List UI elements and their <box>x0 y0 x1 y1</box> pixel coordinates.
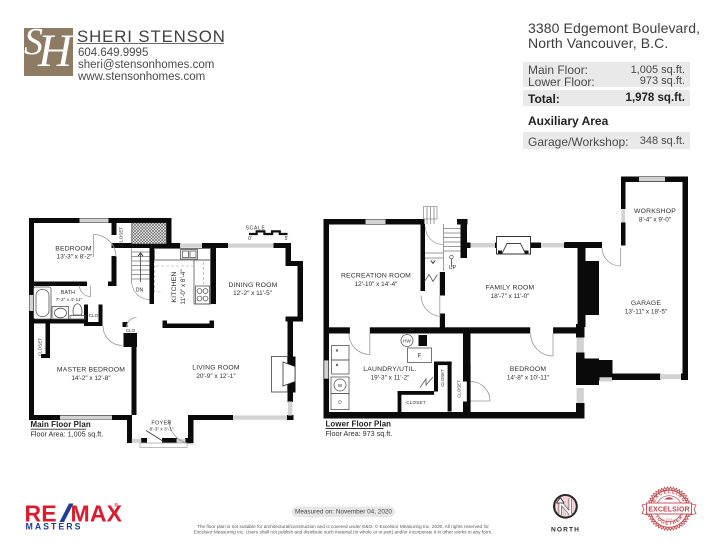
svg-text:— 2016 —: — 2016 — <box>662 517 676 521</box>
svg-text:BATH: BATH <box>61 290 75 296</box>
svg-text:W: W <box>338 383 343 389</box>
svg-text:FAMILY ROOM: FAMILY ROOM <box>486 285 535 292</box>
svg-text:CLOSET: CLOSET <box>440 369 445 387</box>
svg-text:CLOSET: CLOSET <box>457 380 462 398</box>
svg-text:UP: UP <box>449 265 457 271</box>
svg-text:13′-3″ x 8′-2″: 13′-3″ x 8′-2″ <box>57 254 93 261</box>
svg-text:SCALE: SCALE <box>245 226 265 232</box>
svg-text:14′-8″ x 10′-11″: 14′-8″ x 10′-11″ <box>507 374 550 381</box>
svg-text:Floor Area: 1,005 sq.ft.: Floor Area: 1,005 sq.ft. <box>31 430 104 439</box>
svg-text:12′-10″ x 14′-4″: 12′-10″ x 14′-4″ <box>355 281 399 288</box>
svg-text:RECREATION ROOM: RECREATION ROOM <box>341 273 411 280</box>
svg-text:13′-11″ x 18′-5″: 13′-11″ x 18′-5″ <box>625 308 668 315</box>
svg-text:14′-2″ x 12′-8″: 14′-2″ x 12′-8″ <box>71 375 111 382</box>
svg-text:NORTH: NORTH <box>551 526 580 533</box>
svg-text:5': 5' <box>285 236 289 242</box>
svg-text:7′-2″ x 4′-11″: 7′-2″ x 4′-11″ <box>56 297 83 303</box>
svg-text:20′-9″ x 12′-1″: 20′-9″ x 12′-1″ <box>196 373 236 380</box>
svg-text:MASTERS: MASTERS <box>26 522 83 532</box>
svg-text:11′-0″ x 8′-4″: 11′-0″ x 8′-4″ <box>180 269 187 305</box>
svg-text:0': 0' <box>248 236 252 242</box>
svg-text:F: F <box>418 354 422 360</box>
svg-text:GARAGE: GARAGE <box>631 300 662 307</box>
svg-text:LIVING ROOM: LIVING ROOM <box>192 365 240 372</box>
svg-text:MASTER BEDROOM: MASTER BEDROOM <box>57 367 125 374</box>
svg-text:BEDROOM: BEDROOM <box>55 246 92 253</box>
svg-text:KITCHEN: KITCHEN <box>171 271 178 302</box>
svg-text:Lower Floor Plan: Lower Floor Plan <box>326 419 392 428</box>
svg-text:Main Floor Plan: Main Floor Plan <box>31 420 91 429</box>
svg-text:18′-7″ x 11′-0″: 18′-7″ x 11′-0″ <box>491 293 531 300</box>
svg-text:CLOSET: CLOSET <box>406 400 426 405</box>
svg-text:BEDROOM: BEDROOM <box>510 366 547 373</box>
svg-text:The floor plan is not suitable: The floor plan is not suitable for archi… <box>197 523 489 529</box>
svg-text:FOYER: FOYER <box>151 421 171 427</box>
svg-text:DINING ROOM: DINING ROOM <box>228 282 277 289</box>
svg-text:12′-2″ x 11′-5″: 12′-2″ x 11′-5″ <box>233 290 273 297</box>
svg-text:8′-3″ x 3′-1″: 8′-3″ x 3′-1″ <box>149 427 173 433</box>
svg-text:DN: DN <box>136 288 144 294</box>
svg-text:Measured on: November 04, 202: Measured on: November 04, 2020 <box>295 509 392 516</box>
svg-text:CLO: CLO <box>89 313 99 318</box>
svg-text:LAUNDRY/UTIL.: LAUNDRY/UTIL. <box>363 366 416 373</box>
svg-text:19′-3″ x 11′-2″: 19′-3″ x 11′-2″ <box>371 374 411 381</box>
svg-text:CLOSET: CLOSET <box>119 227 124 246</box>
svg-text:HW: HW <box>403 339 411 344</box>
svg-text:Excelsior Measuring Inc. Users: Excelsior Measuring Inc. Users shall not… <box>194 530 493 535</box>
svg-text:CLOSET: CLOSET <box>38 338 43 357</box>
svg-text:D: D <box>338 400 342 406</box>
svg-text:Floor Area: 973 sq.ft.: Floor Area: 973 sq.ft. <box>326 429 393 438</box>
svg-text:WORKSHOP: WORKSHOP <box>634 208 676 215</box>
svg-text:®: ® <box>115 502 119 509</box>
svg-text:8′-4″ x 9′-0″: 8′-4″ x 9′-0″ <box>639 216 672 223</box>
svg-text:CLO: CLO <box>126 328 136 333</box>
svg-text:EXCELSIOR: EXCELSIOR <box>648 507 689 514</box>
